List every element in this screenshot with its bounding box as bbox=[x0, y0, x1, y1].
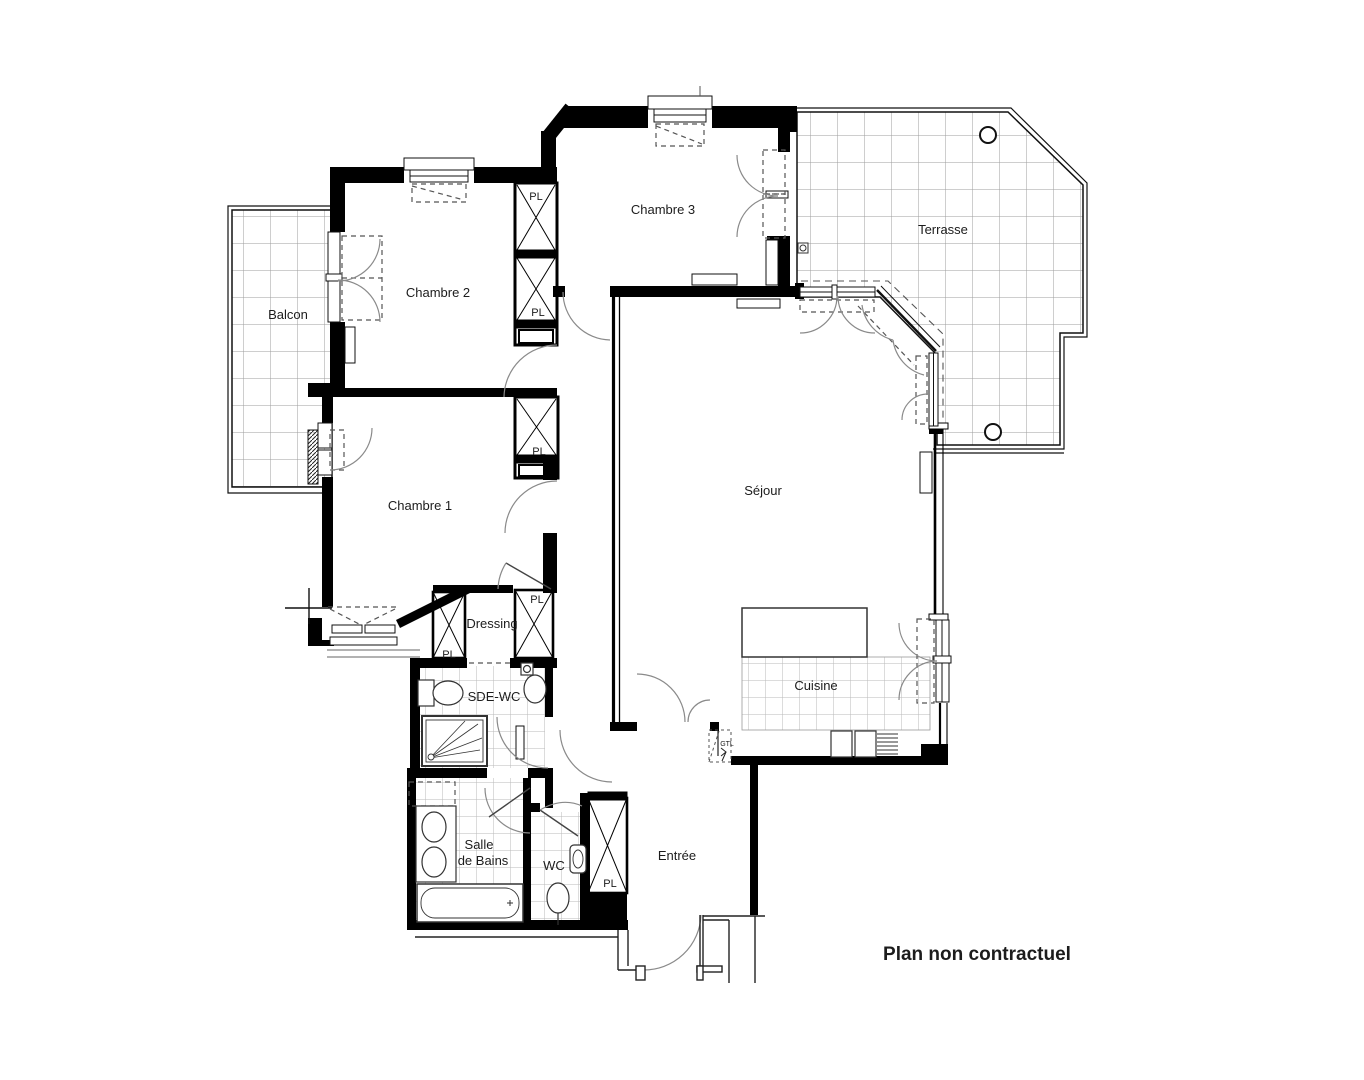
door-terrace-chambre3 bbox=[737, 196, 778, 237]
kitchen-casement bbox=[899, 623, 937, 661]
shower-drain bbox=[428, 754, 434, 760]
closet-label-pl: PL bbox=[442, 649, 455, 661]
terrace-drain bbox=[985, 424, 1001, 440]
door-terrace-chambre3 bbox=[737, 155, 778, 196]
radiator bbox=[516, 726, 524, 759]
window-swing-chambre1 bbox=[330, 428, 372, 470]
room-label-cuisine: Cuisine bbox=[794, 678, 837, 693]
radiator bbox=[345, 327, 355, 363]
kitchen-vent bbox=[877, 734, 898, 754]
room-label-sde-wc: SDE-WC bbox=[468, 689, 521, 704]
room-label-entree: Entrée bbox=[658, 848, 696, 863]
toilet-tank bbox=[418, 680, 434, 706]
plan-disclaimer: Plan non contractuel bbox=[883, 944, 1071, 965]
room-label-wc: WC bbox=[543, 858, 565, 873]
room-label-dressing: Dressing bbox=[466, 616, 517, 631]
door-balcony-leaf bbox=[338, 280, 380, 322]
terrace-area bbox=[793, 108, 1087, 453]
room-label-salle-line1: Salle bbox=[465, 837, 494, 852]
door-entry bbox=[643, 915, 701, 970]
kitchen-appliance bbox=[855, 731, 876, 757]
floor-plan: Balcon Chambre 2 Chambre 3 Terrasse Cham… bbox=[0, 0, 1364, 1080]
door-sejour-large-leaf bbox=[637, 674, 685, 722]
bay-casement bbox=[862, 305, 893, 340]
closet-label-pl: PL bbox=[529, 191, 542, 203]
radiator bbox=[766, 240, 778, 285]
kitchen-counter bbox=[742, 608, 867, 657]
room-label-sejour: Séjour bbox=[744, 483, 782, 498]
closet-label-pl: PL bbox=[532, 446, 545, 458]
sejour-west-wall bbox=[614, 288, 620, 722]
radiator bbox=[920, 452, 932, 493]
kitchen-floor-tiles bbox=[742, 657, 930, 730]
room-label-chambre2: Chambre 2 bbox=[406, 285, 470, 300]
closet-label-pl: PL bbox=[603, 878, 616, 890]
terrace-drain bbox=[980, 127, 996, 143]
door-hall bbox=[560, 730, 612, 782]
door-chambre3 bbox=[563, 292, 610, 340]
floor-plan-page: Balcon Chambre 2 Chambre 3 Terrasse Cham… bbox=[0, 0, 1364, 1080]
room-label-balcon: Balcon bbox=[268, 307, 308, 322]
door-sejour-small-leaf bbox=[688, 700, 710, 722]
gtl-symbol bbox=[721, 748, 726, 761]
bay-casement bbox=[893, 340, 924, 375]
door-balcony-leaf bbox=[338, 239, 380, 281]
kitchen-appliance bbox=[831, 731, 852, 757]
bay-casement bbox=[838, 296, 875, 333]
room-label-terrasse: Terrasse bbox=[918, 222, 968, 237]
bay-casement bbox=[800, 296, 837, 333]
washbasin bbox=[422, 847, 446, 877]
closet-label-pl: PL bbox=[531, 307, 544, 319]
room-label-salle-line2: de Bains bbox=[458, 853, 509, 868]
room-label-chambre1: Chambre 1 bbox=[388, 498, 452, 513]
radiator bbox=[692, 274, 737, 285]
toilet-bowl bbox=[433, 681, 463, 705]
gtl-label: GTL bbox=[720, 741, 734, 748]
washbasin bbox=[422, 812, 446, 842]
bay-casement bbox=[902, 394, 928, 420]
room-label-chambre3: Chambre 3 bbox=[631, 202, 695, 217]
door-chambre1 bbox=[505, 481, 557, 533]
closet-label-pl: PL bbox=[530, 594, 543, 606]
radiator bbox=[737, 299, 780, 308]
washbasin bbox=[524, 675, 546, 703]
toilet-bowl bbox=[547, 883, 569, 913]
